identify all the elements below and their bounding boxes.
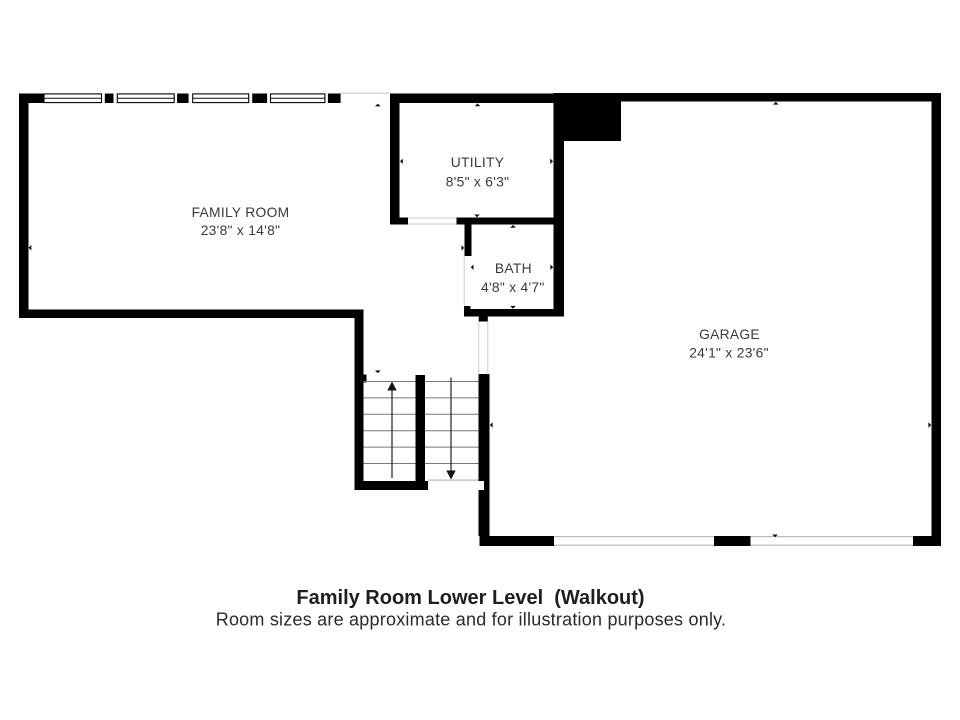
svg-text:BATH: BATH bbox=[495, 261, 532, 276]
svg-text:8'5" x 6'3": 8'5" x 6'3" bbox=[446, 174, 510, 189]
svg-text:Family Room Lower Level (Walk: Family Room Lower Level (Walkout) bbox=[296, 587, 644, 609]
svg-text:23'8" x 14'8": 23'8" x 14'8" bbox=[201, 223, 281, 238]
svg-text:FAMILY ROOM: FAMILY ROOM bbox=[192, 205, 290, 220]
svg-text:24'1" x 23'6": 24'1" x 23'6" bbox=[689, 345, 769, 360]
svg-text:4'8" x 4'7": 4'8" x 4'7" bbox=[481, 280, 545, 295]
svg-text:UTILITY: UTILITY bbox=[451, 155, 504, 170]
svg-text:GARAGE: GARAGE bbox=[699, 327, 760, 342]
svg-text:Room sizes are approximate and: Room sizes are approximate and for illus… bbox=[216, 609, 727, 629]
